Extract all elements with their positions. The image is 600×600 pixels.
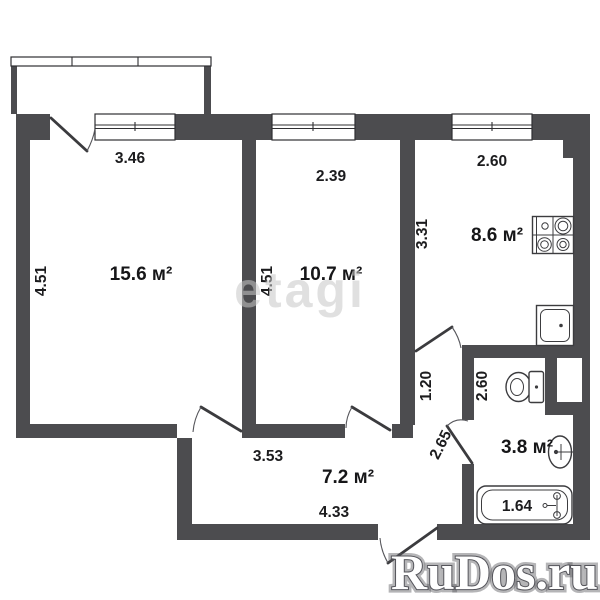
area-living-room: 15.6 м² bbox=[110, 264, 173, 285]
bedroom-door bbox=[346, 407, 390, 430]
living-room-door bbox=[193, 407, 241, 432]
window-bedroom bbox=[272, 114, 355, 140]
kitchen-door bbox=[416, 327, 461, 351]
wall-segment bbox=[177, 524, 378, 540]
area-hallway: 7.2 м² bbox=[322, 467, 374, 488]
dim-living-depth: 4.51 bbox=[33, 266, 50, 297]
wall-segment bbox=[16, 424, 177, 438]
dim-kitchen-depth: 3.31 bbox=[414, 219, 431, 250]
watermark-etagi: etagi bbox=[234, 262, 366, 318]
stove-icon bbox=[533, 217, 574, 254]
wall-segment bbox=[355, 114, 452, 140]
watermark-rudos: RuDos.ru bbox=[391, 544, 598, 600]
dim-inner-hall-width: 1.20 bbox=[418, 371, 435, 401]
dim-kitchen-width: 2.60 bbox=[477, 153, 507, 170]
labels: 3.46 2.39 2.60 4.51 4.51 3.31 1.20 2.60 … bbox=[33, 150, 553, 521]
kitchen-sink-icon bbox=[537, 306, 574, 346]
wall-segment bbox=[532, 114, 590, 140]
balcony-door bbox=[51, 118, 95, 151]
wall-segment bbox=[16, 114, 30, 438]
wall-segment bbox=[392, 424, 413, 438]
wall-segment bbox=[563, 140, 590, 158]
floor-plan: 3.46 2.39 2.60 4.51 4.51 3.31 1.20 2.60 … bbox=[0, 0, 600, 600]
dim-living-width: 3.46 bbox=[115, 150, 146, 167]
dim-bathroom-depth: 2.60 bbox=[474, 371, 491, 401]
shaft-niche bbox=[557, 358, 582, 402]
floor-plan-svg: 3.46 2.39 2.60 4.51 4.51 3.31 1.20 2.60 … bbox=[0, 0, 600, 600]
dim-bedroom-width: 2.39 bbox=[316, 168, 347, 185]
area-bathroom: 3.8 м² bbox=[501, 437, 553, 458]
wall-segment bbox=[462, 358, 474, 420]
dim-bathtub-length: 1.64 bbox=[502, 498, 533, 515]
window-living-room bbox=[95, 114, 175, 140]
wall-segment bbox=[175, 114, 272, 140]
wall-segment bbox=[545, 402, 590, 415]
toilet-icon bbox=[506, 372, 544, 403]
wall-segment bbox=[177, 438, 192, 524]
dim-hallway-bottom-width: 4.33 bbox=[319, 504, 350, 521]
wall-segment bbox=[400, 140, 415, 425]
wall-segment bbox=[545, 358, 558, 403]
wall-segment bbox=[462, 345, 590, 358]
wall-segment bbox=[437, 524, 590, 540]
wall-segment bbox=[242, 424, 345, 438]
wall-segment bbox=[462, 464, 474, 524]
area-kitchen: 8.6 м² bbox=[471, 225, 523, 246]
window-kitchen bbox=[452, 114, 532, 140]
balcony-railing bbox=[11, 57, 211, 66]
dim-hallway-top-width: 3.53 bbox=[253, 448, 284, 465]
